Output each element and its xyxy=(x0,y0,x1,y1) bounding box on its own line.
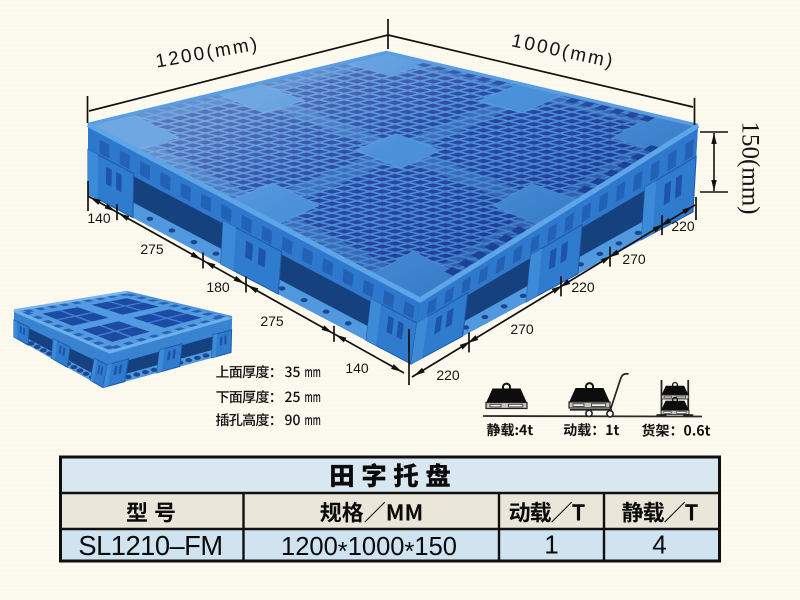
svg-text:220: 220 xyxy=(671,218,695,234)
svg-text:270: 270 xyxy=(510,321,534,337)
svg-text:140: 140 xyxy=(345,360,369,376)
svg-text:220: 220 xyxy=(571,279,595,295)
svg-text:275: 275 xyxy=(260,313,284,329)
svg-text:220: 220 xyxy=(436,367,460,383)
svg-text:140: 140 xyxy=(87,210,111,226)
svg-text:4: 4 xyxy=(652,530,666,560)
svg-text:180: 180 xyxy=(206,279,230,295)
svg-text:150(mm): 150(mm) xyxy=(736,121,763,214)
svg-text:270: 270 xyxy=(622,251,646,267)
svg-text:SL1210–FM: SL1210–FM xyxy=(78,530,222,561)
svg-text:275: 275 xyxy=(140,241,164,257)
svg-text:1: 1 xyxy=(544,530,558,560)
